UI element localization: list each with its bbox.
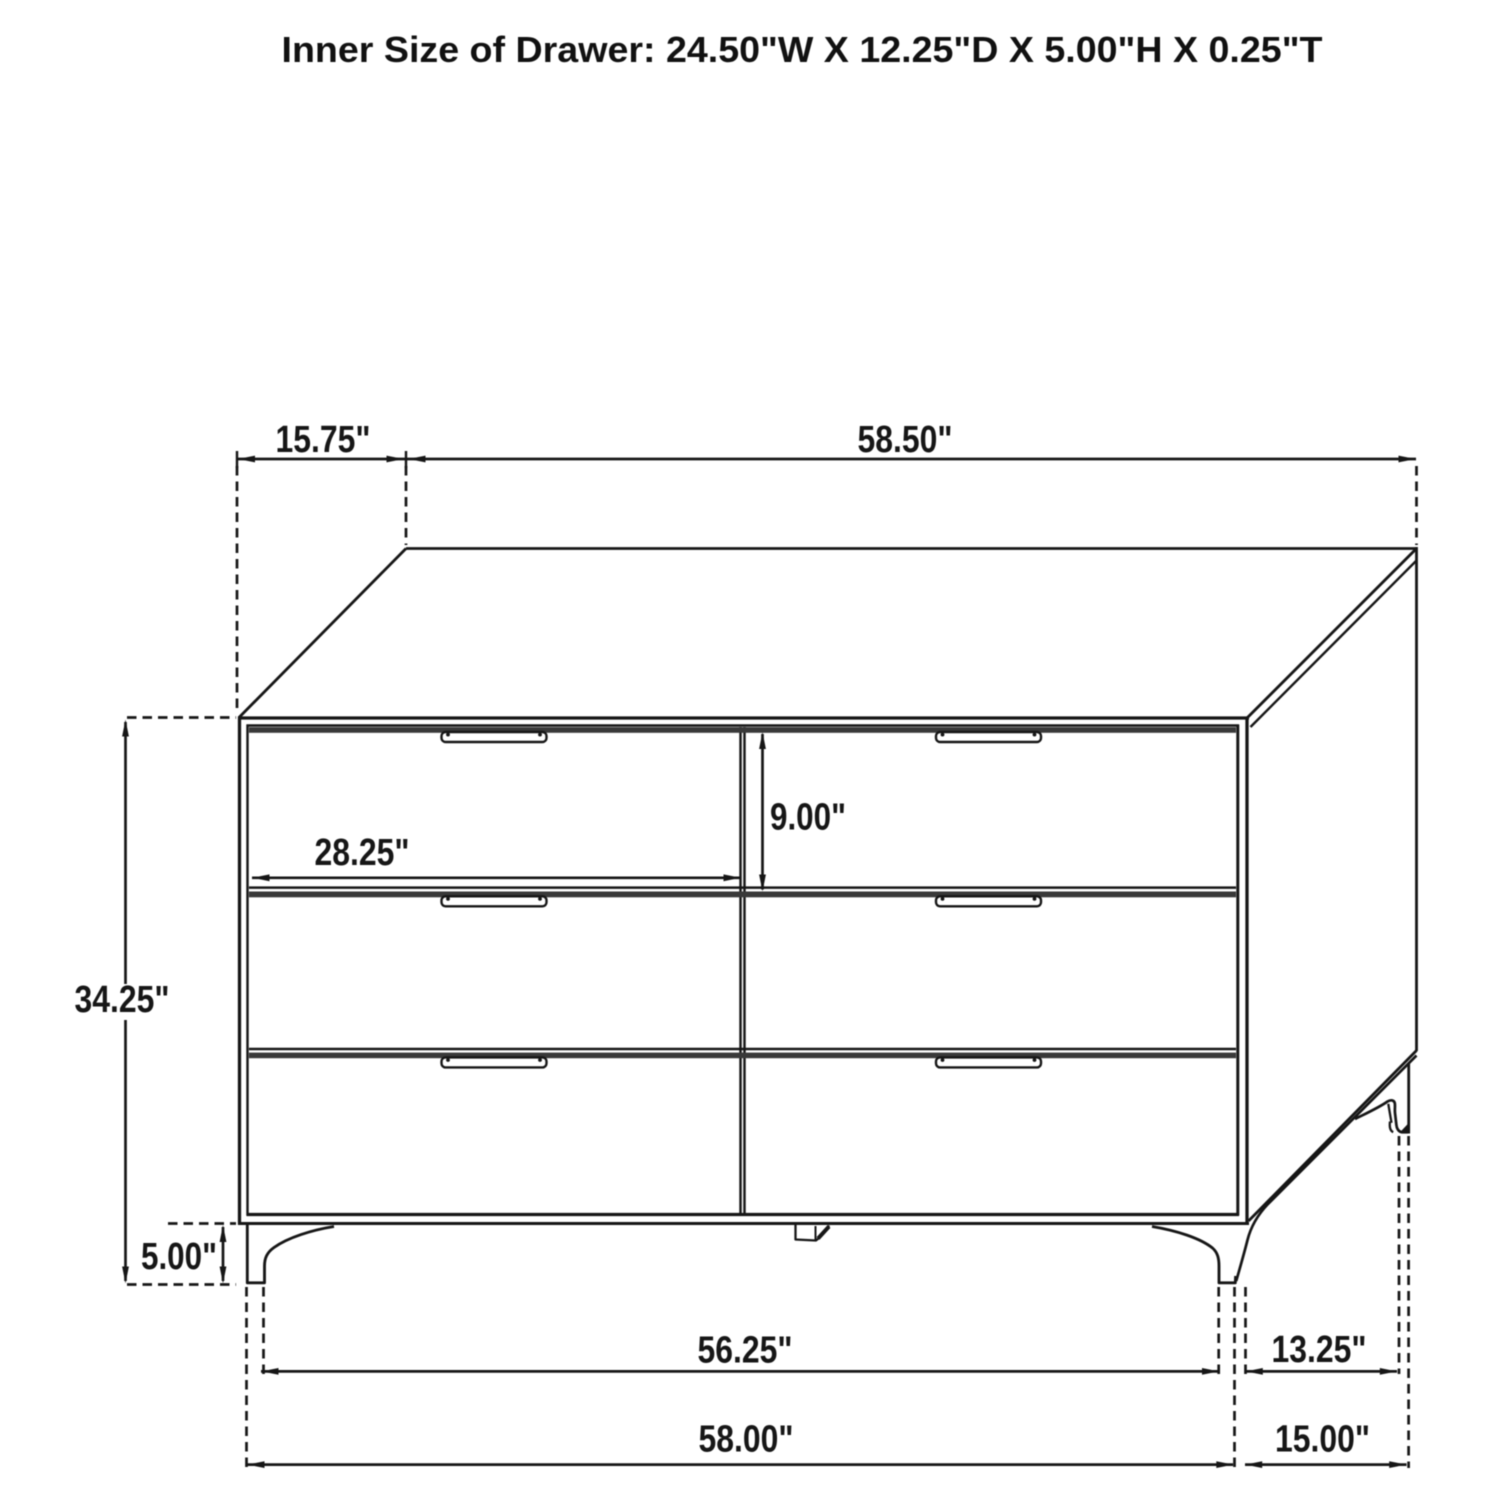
svg-text:15.00": 15.00" [1275,1419,1370,1461]
svg-text:Inner Size of Drawer: 24.50"W: Inner Size of Drawer: 24.50"W X 12.25"D … [282,29,1323,70]
svg-text:9.00": 9.00" [770,797,846,839]
svg-text:34.25": 34.25" [75,979,170,1021]
svg-text:15.75": 15.75" [276,419,371,461]
svg-text:58.00": 58.00" [699,1419,794,1461]
svg-text:58.50": 58.50" [858,419,953,461]
svg-text:56.25": 56.25" [698,1330,793,1372]
svg-text:13.25": 13.25" [1272,1329,1367,1371]
svg-text:5.00": 5.00" [141,1236,217,1278]
svg-text:28.25": 28.25" [315,832,410,874]
